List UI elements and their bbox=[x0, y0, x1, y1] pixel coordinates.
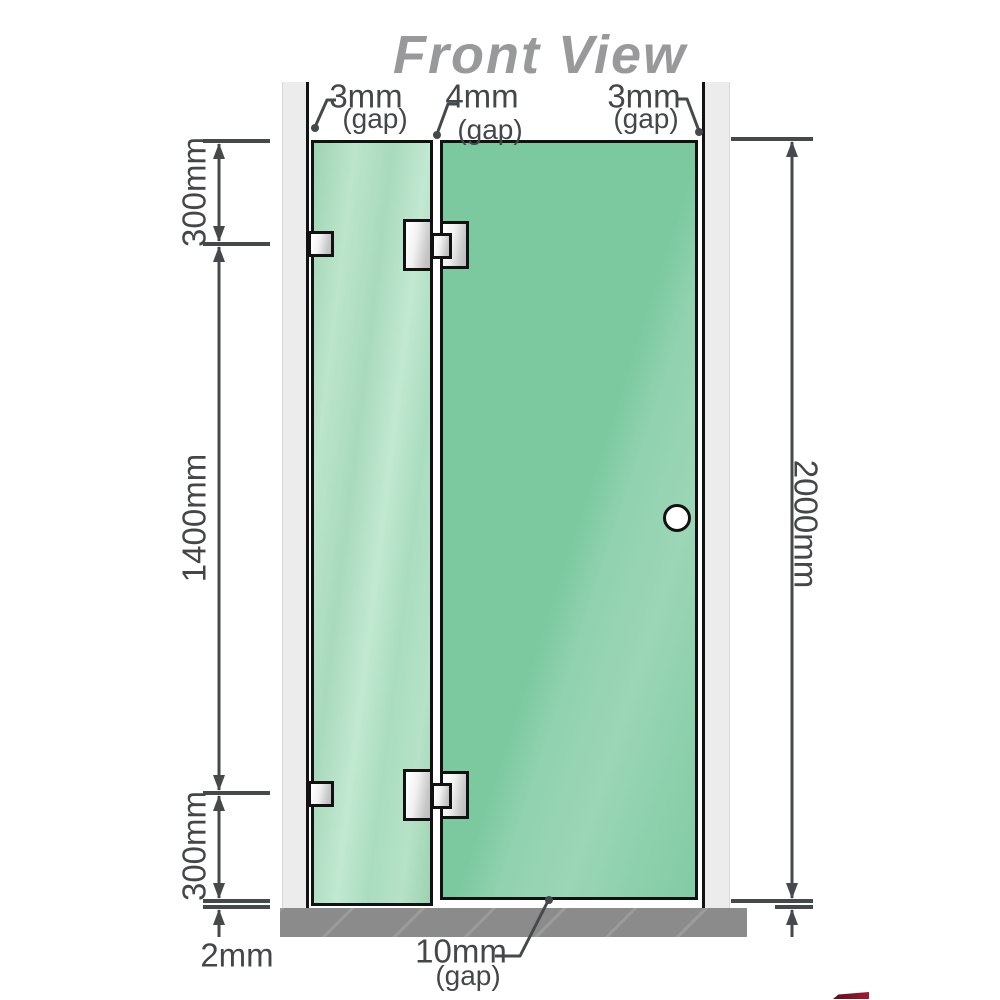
bottom-hinge-fixed-plate bbox=[403, 769, 433, 821]
gap-label-mid-note: (gap) bbox=[457, 116, 522, 144]
gap-label-right-note: (gap) bbox=[613, 105, 678, 133]
top-hinge-knuckle bbox=[431, 233, 452, 259]
door-gap-label-note: (gap) bbox=[435, 962, 500, 990]
door-glass-panel bbox=[440, 140, 698, 900]
dim-label-lower-300: 300mm bbox=[178, 791, 211, 901]
dim-label-floor-gap-2mm: 2mm bbox=[200, 939, 273, 972]
dim-label-middle-1400: 1400mm bbox=[178, 454, 211, 582]
floor-base bbox=[280, 908, 747, 937]
door-handle-hole bbox=[663, 504, 691, 532]
gap-label-left-note: (gap) bbox=[342, 105, 407, 133]
dim-label-total-2000: 2000mm bbox=[790, 460, 823, 588]
wall-bracket-top bbox=[308, 231, 334, 257]
bottom-hinge-knuckle bbox=[431, 783, 452, 809]
wall-bracket-bottom bbox=[308, 781, 334, 807]
wall-post-right bbox=[702, 82, 730, 908]
front-view-diagram: Front View bbox=[0, 0, 1000, 1000]
gap-label-mid-value: 4mm bbox=[445, 80, 518, 113]
top-hinge-fixed-plate bbox=[403, 219, 433, 271]
dim-label-upper-300: 300mm bbox=[178, 137, 211, 247]
wall-post-left bbox=[282, 82, 309, 908]
watermark-fragment bbox=[833, 992, 869, 999]
